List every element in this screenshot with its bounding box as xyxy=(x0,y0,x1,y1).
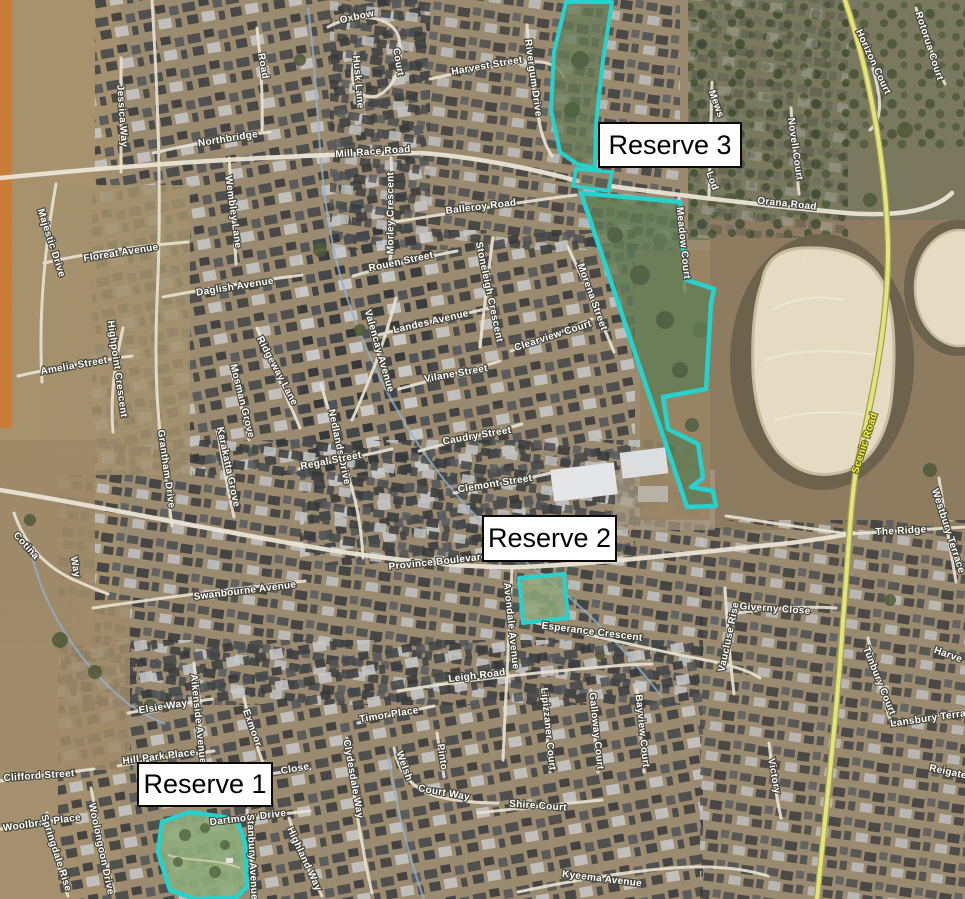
aerial-map: OxbowCourtHusk LaneHarvest StreetRivergu… xyxy=(0,0,965,899)
street-label-morley-crescent: Morley Crescent xyxy=(386,171,397,254)
reserve-2-callout: Reserve 2 xyxy=(482,515,617,562)
reserve-2-callout-text: Reserve 2 xyxy=(488,523,611,554)
reserve-1-callout: Reserve 1 xyxy=(137,762,273,807)
reserve-1-callout-text: Reserve 1 xyxy=(143,769,266,800)
reserve-3-callout-text: Reserve 3 xyxy=(608,130,731,161)
reserve-3-callout: Reserve 3 xyxy=(598,122,742,168)
